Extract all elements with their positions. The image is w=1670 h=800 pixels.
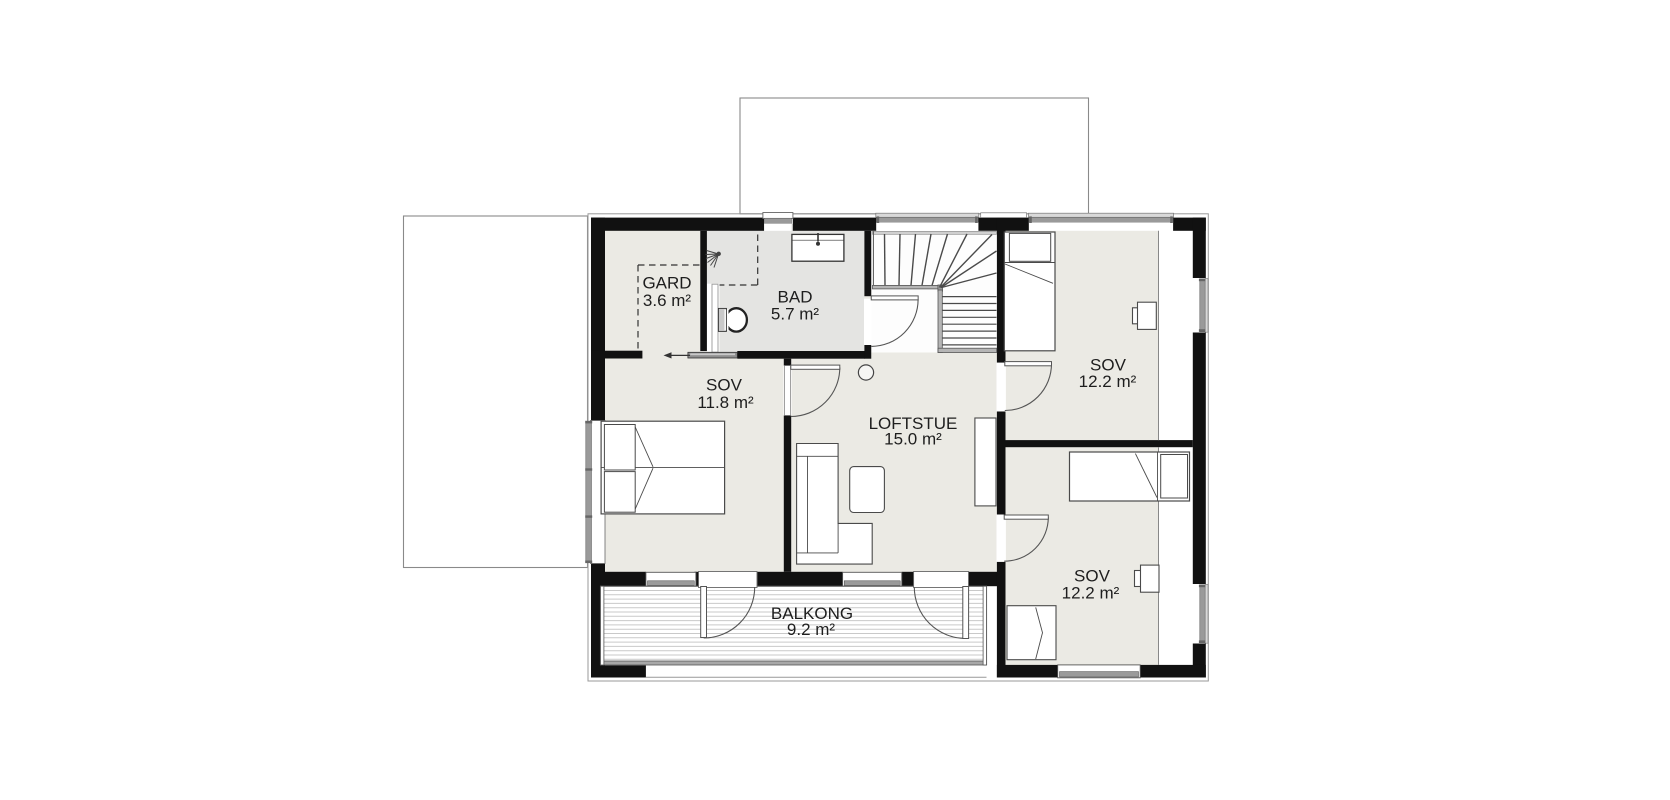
svg-text:11.8 m²: 11.8 m² [697,393,754,412]
svg-text:15.0 m²: 15.0 m² [884,430,942,449]
svg-text:12.2 m²: 12.2 m² [1079,372,1137,391]
svg-text:3.6 m²: 3.6 m² [643,291,692,310]
svg-text:9.2 m²: 9.2 m² [787,620,836,639]
svg-text:5.7 m²: 5.7 m² [771,305,820,324]
svg-text:GARD: GARD [642,274,691,293]
svg-text:SOV: SOV [706,376,743,395]
svg-text:12.2 m²: 12.2 m² [1062,584,1120,603]
